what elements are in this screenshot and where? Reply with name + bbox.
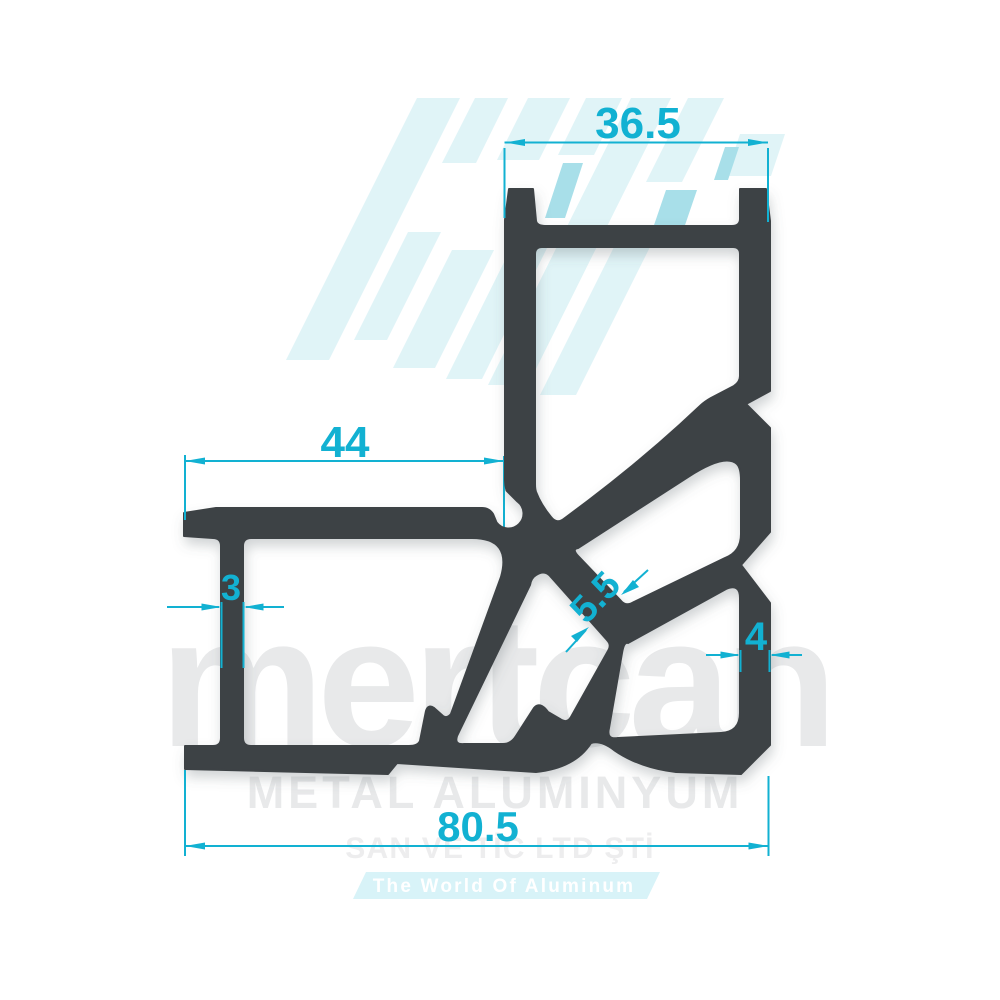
svg-text:80.5: 80.5 bbox=[437, 803, 519, 850]
svg-text:44: 44 bbox=[321, 418, 370, 467]
svg-text:4: 4 bbox=[745, 615, 768, 659]
svg-text:3: 3 bbox=[221, 567, 241, 608]
svg-text:The World Of Aluminum: The World Of Aluminum bbox=[373, 876, 636, 897]
svg-text:36.5: 36.5 bbox=[595, 99, 681, 148]
